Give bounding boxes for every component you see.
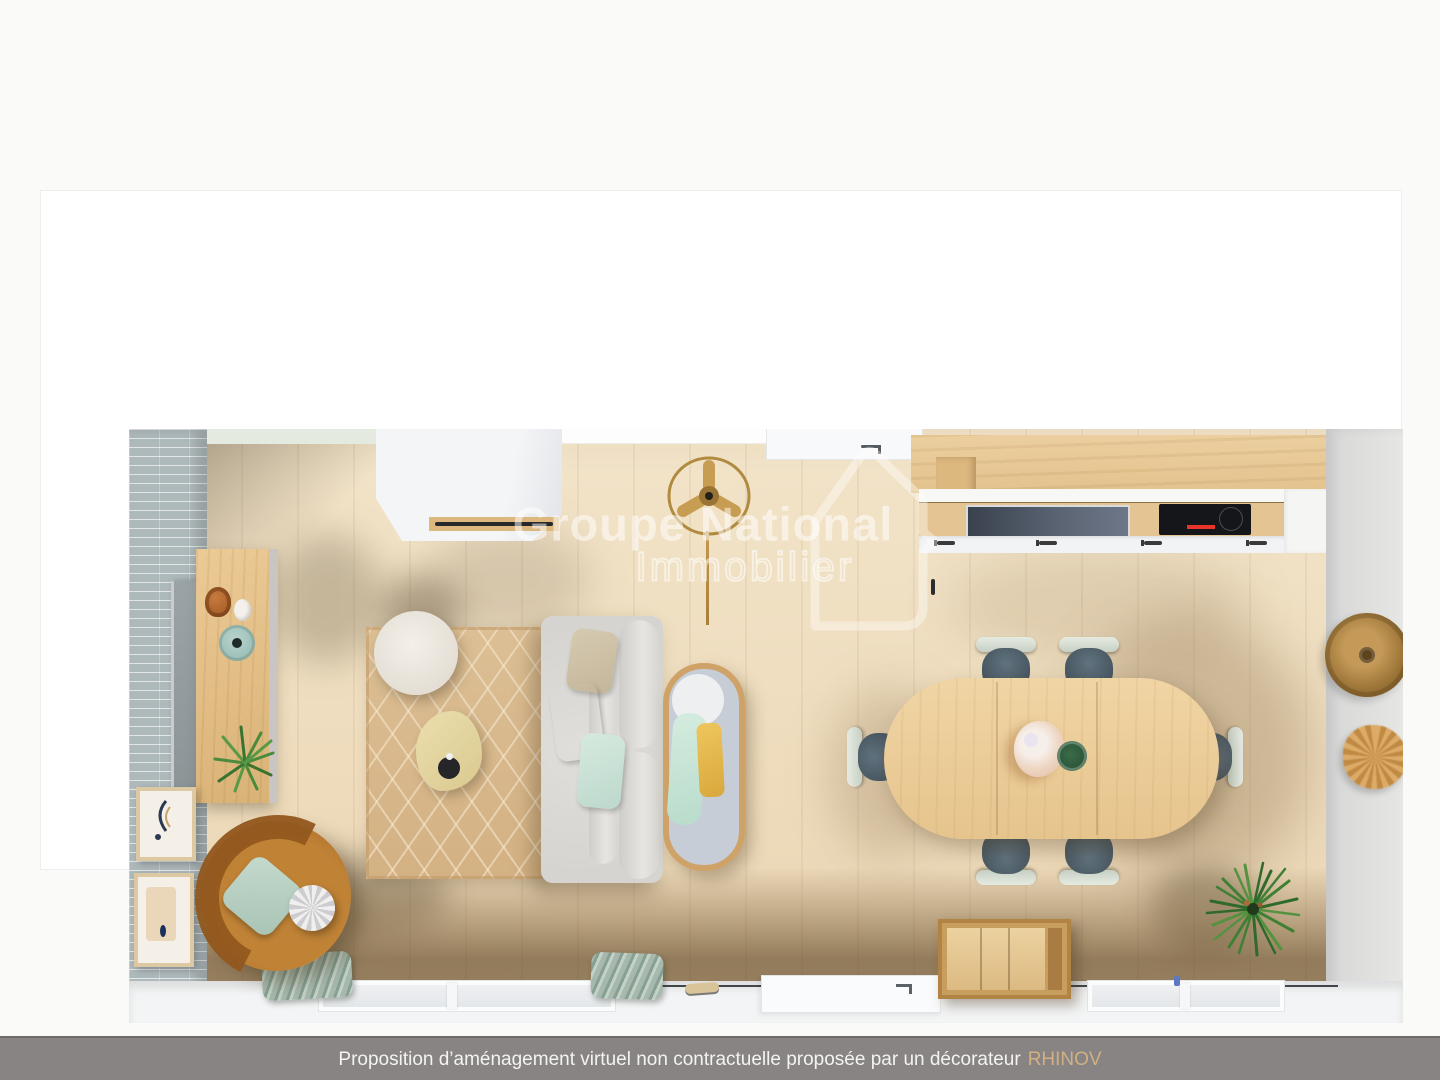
- small-plant-icon: [213, 723, 277, 797]
- chest-seam: [1008, 928, 1010, 990]
- window: [1087, 980, 1285, 1012]
- armchair: [201, 821, 351, 971]
- burner-icon: [1219, 507, 1243, 531]
- terracotta-vase: [205, 587, 231, 617]
- white-vase: [234, 599, 251, 621]
- window-handle-icon: [1174, 976, 1180, 986]
- green-wall-strip: [207, 429, 379, 444]
- render-card: [40, 190, 1402, 870]
- window-mullion: [1180, 983, 1190, 1009]
- chest-flap: [1048, 928, 1062, 990]
- kitchen-sink: [966, 505, 1130, 538]
- window-glass: [323, 985, 611, 1007]
- cooktop: [1159, 504, 1251, 535]
- mint-pillow: [576, 732, 626, 810]
- cabinet-handle-icon: [931, 579, 935, 595]
- sofa: [541, 616, 663, 883]
- day-bed: [663, 663, 745, 871]
- door-handle-icon: [896, 984, 912, 987]
- cooktop-display: [1187, 525, 1203, 529]
- table-seam: [996, 682, 998, 835]
- entry-door: [766, 429, 923, 460]
- yellow-pillow: [696, 722, 725, 797]
- drawer-handle-icon: [1144, 541, 1162, 545]
- table-seam: [1096, 682, 1098, 835]
- frame-art-icon: [140, 791, 184, 849]
- small-plant-icon: [213, 723, 277, 797]
- wardrobe-rail: [435, 522, 553, 526]
- kitchen-cabinets: [911, 435, 1381, 493]
- apartment-room: [129, 429, 1403, 1023]
- caption-text: Proposition d’aménagement virtuel non co…: [338, 1049, 1020, 1071]
- french-door: [761, 975, 941, 1013]
- kitchen-run: [911, 429, 1381, 553]
- knot-cushion: [289, 885, 335, 931]
- frame-art: [160, 925, 166, 937]
- window-mullion: [447, 983, 457, 1009]
- wooden-chest: [938, 919, 1071, 999]
- wall-frame: [134, 873, 194, 967]
- chest-top: [947, 928, 1045, 990]
- ceiling-fan-icon: [656, 453, 762, 539]
- teal-vase: [219, 625, 255, 661]
- wall-frame: [136, 787, 196, 861]
- ceiling-fan: [656, 453, 762, 539]
- shadow: [271, 533, 381, 663]
- caption-bar: Proposition d’aménagement virtuel non co…: [0, 1036, 1440, 1080]
- green-plant-icon: [1205, 861, 1301, 957]
- raffia-decor: [1343, 725, 1403, 789]
- drawer-handle-icon: [1249, 541, 1267, 545]
- door-handle-icon: [861, 445, 881, 448]
- green-plant-icon: [1205, 861, 1301, 957]
- curtain-bunch: [590, 952, 664, 1000]
- green-mug: [1057, 741, 1087, 771]
- chest-seam: [980, 928, 982, 990]
- sofa-bolster: [619, 752, 659, 879]
- render-canvas: Groupe National Immobilier Proposition d…: [0, 0, 1440, 1080]
- pouf: [374, 611, 458, 695]
- floor-shadow-band: [207, 867, 1326, 983]
- wood-disc-decor: [1325, 613, 1403, 697]
- drawer-handle-icon: [937, 541, 955, 545]
- sofa-bolster: [619, 620, 659, 748]
- drawer-handle-icon: [1039, 541, 1057, 545]
- caption-brand: RHINOV: [1028, 1049, 1102, 1071]
- window: [318, 980, 616, 1012]
- fan-rod: [706, 531, 709, 625]
- black-vase: [438, 757, 460, 779]
